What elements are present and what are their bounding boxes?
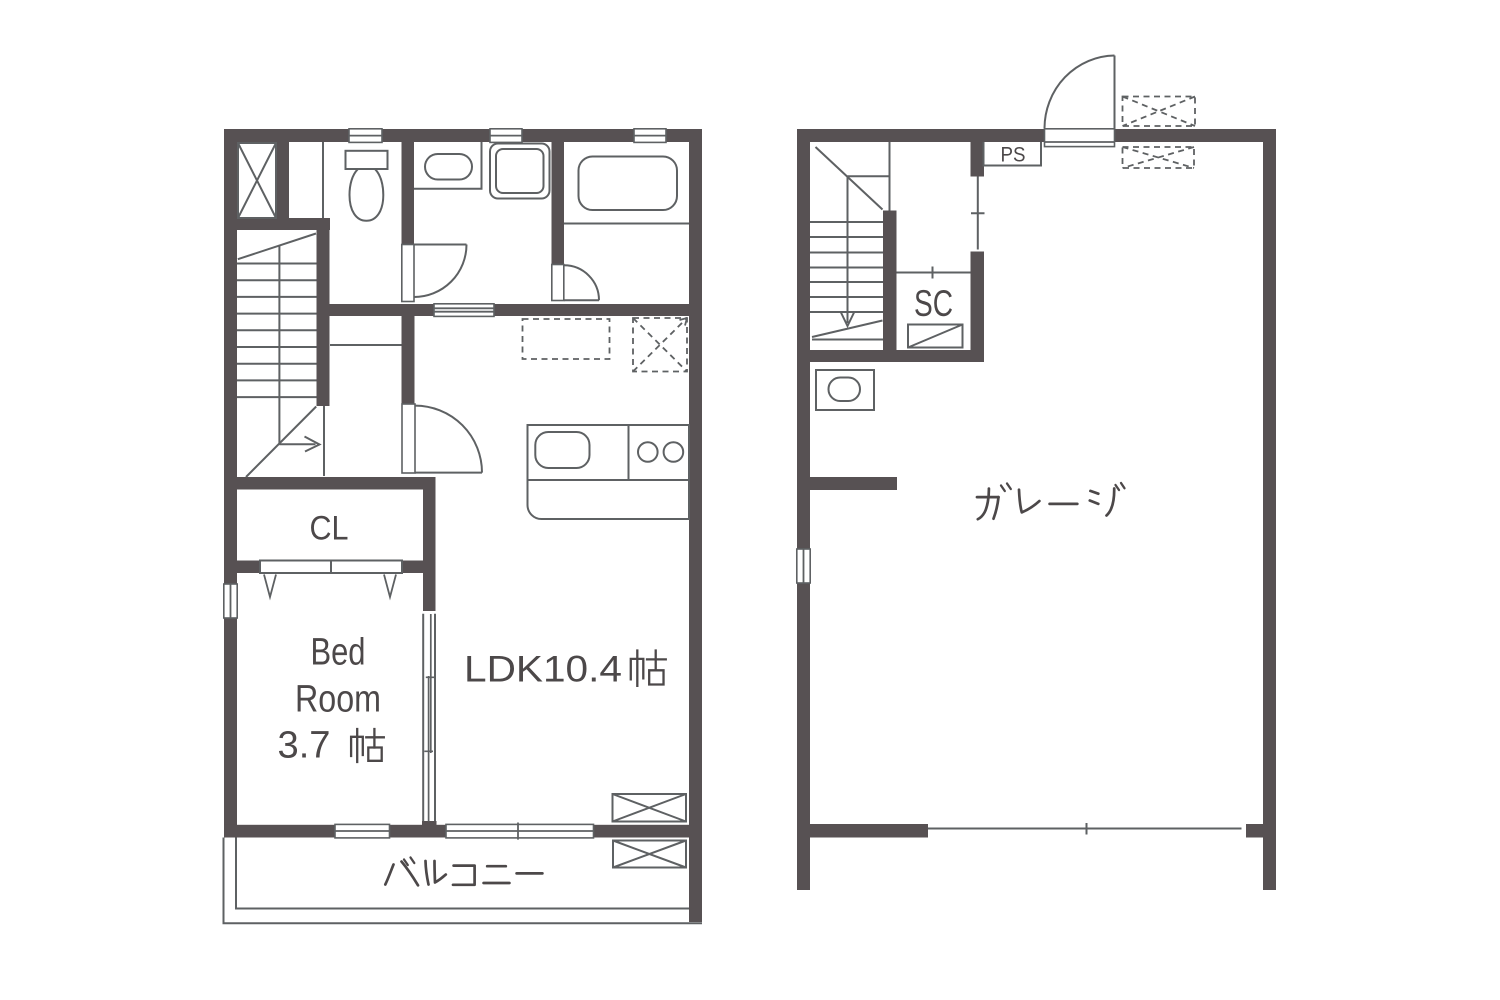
svg-text:SC: SC [914,283,953,324]
svg-text:Room: Room [295,679,381,721]
svg-text:CL: CL [310,509,349,547]
svg-text:Bed: Bed [311,632,366,674]
svg-text:3.7: 3.7 [278,725,331,767]
svg-text:PS: PS [1001,144,1026,167]
svg-text:LDK10.4: LDK10.4 [464,649,622,690]
